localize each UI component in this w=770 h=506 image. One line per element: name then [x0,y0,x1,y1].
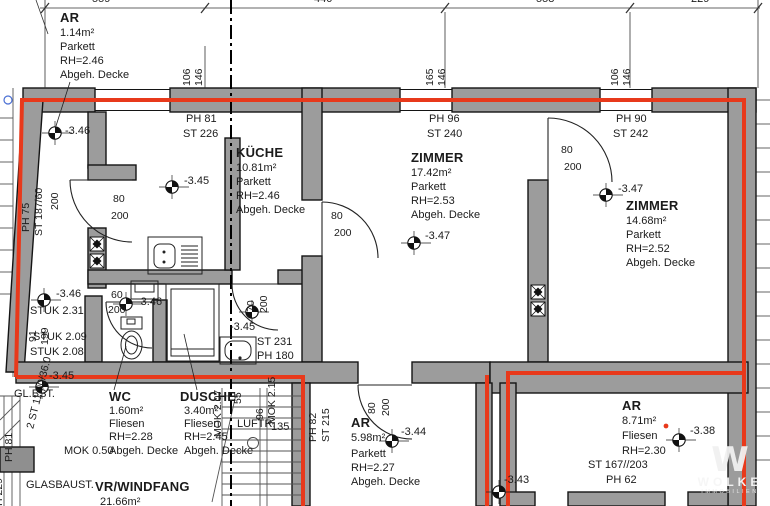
room-ar-right-name: AR [622,399,641,413]
wolke-logo-letter: W [690,444,770,476]
level-left-lower: -3.45 [49,370,74,384]
room-wc-area: 1.60m² [109,405,143,419]
room-kueche-area: 10.81m² [236,162,276,176]
h229-label: H 229 [0,478,5,506]
floor-plan: 559 440 558 229 106 146 165 146 106 146 … [0,0,770,506]
room-vr-area: 21.66m² [100,496,140,506]
room-ar-right-height: RH=2.30 [622,445,666,459]
room-wc-name: WC [109,390,131,404]
ar-right-ph: PH 62 [606,474,637,488]
mok-215: MOK 2.15 [267,377,278,424]
room-ar-mid-floor: Parkett [351,448,386,462]
dim-top-1: 559 [92,0,110,7]
stuk-3: STUK 2.08 [30,346,84,360]
door-wc-height: 200 [108,304,126,318]
ar-right-st: ST 167//203 [588,459,648,473]
dim-top-3: 558 [536,0,554,7]
red-dot [664,424,669,429]
dim-wall-165: 165 [425,68,436,86]
kueche-ph: PH 81 [186,113,217,127]
room-kueche-floor: Parkett [236,176,271,190]
zimmer-right-ph: PH 90 [616,113,647,127]
door-wc-width: 60 [111,289,123,303]
basin-ph: PH 180 [257,350,294,364]
kueche-st: ST 226 [183,128,218,142]
ar-mid-ph: PH 82 [308,413,319,442]
wolke-logo-subtitle: IMMOBILIEN [690,489,770,496]
room-wc-height: RH=2.28 [109,431,153,445]
room-zimmer-mid-height: RH=2.53 [411,195,455,209]
dim-199: 199 [40,327,51,345]
door-zr-height: 200 [564,161,582,175]
level-ar-right: -3.38 [690,425,715,439]
kitchen-sink [148,237,202,274]
door-kz-width: 80 [331,210,343,224]
room-dusche-name: DUSCHE [180,390,236,404]
door-armid-height: 200 [381,398,392,416]
dim-wall-106a: 106 [182,68,193,86]
dim-55: 55 [233,392,244,404]
dim-wall-106b: 106 [610,68,621,86]
room-zimmer-right-floor: Parkett [626,229,661,243]
room-ar-mid-area: 5.98m² [351,432,385,446]
ph81-left: PH 81 [4,433,15,462]
zimmer-right-st: ST 242 [613,128,648,142]
room-kueche-name: KÜCHE [236,146,283,160]
door-kz-height: 200 [334,227,352,241]
level-ar-mid: -3.44 [401,426,426,440]
zimmer-mid-st: ST 240 [427,128,462,142]
room-wc-floor: Fliesen [109,418,144,432]
wolke-logo: W WOLKE IMMOBILIEN [690,444,770,496]
room-ar-top-height: RH=2.46 [60,55,104,69]
stuk-1: STUK 2.31 [30,305,84,319]
dim-top-4: 229 [691,0,709,7]
dim-wall-146c: 146 [622,68,633,86]
room-zimmer-mid-area: 17.42m² [411,167,451,181]
room-zimmer-mid-ceiling: Abgeh. Decke [411,209,480,223]
door-armid-width: 80 [367,402,378,414]
dim-wall-146b: 146 [437,68,448,86]
room-ar-mid-height: RH=2.27 [351,462,395,476]
dimension-lines [36,0,762,88]
bath-washbasin [220,337,256,364]
level-basin: -3.45 [230,321,255,335]
dim-96: 96 [255,408,266,420]
room-zimmer-right-area: 14.68m² [626,215,666,229]
level-kueche: -3.45 [184,175,209,189]
room-zimmer-mid-floor: Parkett [411,181,446,195]
level-wc-door: -3.46 [137,296,162,310]
level-zimmer-mid: -3.47 [425,230,450,244]
room-zimmer-right-name: ZIMMER [626,199,678,213]
room-wc-ceiling: Abgeh. Decke [109,445,178,459]
shower-tray [166,284,219,361]
zimmer-mid-ph: PH 96 [429,113,460,127]
level-ar-right-entry: -3.43 [504,474,529,488]
room-ar-top-ceiling: Abgeh. Decke [60,69,129,83]
room-ar-top-name: AR [60,11,79,25]
room-ar-top-area: 1.14m² [60,27,94,41]
room-dusche-ceiling: Abgeh. Decke [184,445,253,459]
room-ar-top-floor: Parkett [60,41,95,55]
door-zr-width: 80 [561,144,573,158]
dim-wall-146a: 146 [194,68,205,86]
room-ar-mid-name: AR [351,416,370,430]
room-ar-right-area: 8.71m² [622,415,656,429]
dim-91: 91 [28,330,39,342]
room-zimmer-mid-name: ZIMMER [411,151,463,165]
st18760-label: ST 187/60 [34,188,45,236]
door-hall-height: 200 [111,210,129,224]
room-ar-mid-ceiling: Abgeh. Decke [351,476,420,490]
ar-mid-st: ST 215 [321,408,332,442]
mok-207: MOK 2.07 [213,390,224,437]
door-hall-width: 80 [113,193,125,207]
glasbaust-label: GLASBAUST. [26,479,94,493]
corridor-200: 200 [50,192,61,210]
level-entry-left: -3.46 [56,288,81,302]
room-vr-name: VR/WINDFANG [95,480,190,494]
basin-st: ST 231 [257,336,292,350]
room-zimmer-right-height: RH=2.52 [626,243,670,257]
dim-top-2: 440 [314,0,332,7]
ph75-label: PH 75 [21,203,32,232]
room-ar-right-floor: Fliesen [622,430,657,444]
room-zimmer-right-ceiling: Abgeh. Decke [626,257,695,271]
door-dusche-width: 70 [246,300,257,312]
room-kueche-ceiling: Abgeh. Decke [236,204,305,218]
door-dusche-height: 200 [259,295,270,313]
level-zimmer-right: -3.47 [618,183,643,197]
blue-marker-circle [4,96,12,104]
wc-mok: MOK 0.50 [64,445,114,459]
room-kueche-height: RH=2.46 [236,190,280,204]
wolke-logo-name: WOLKE [690,476,770,489]
level-ar-top: -3.46 [65,125,90,139]
